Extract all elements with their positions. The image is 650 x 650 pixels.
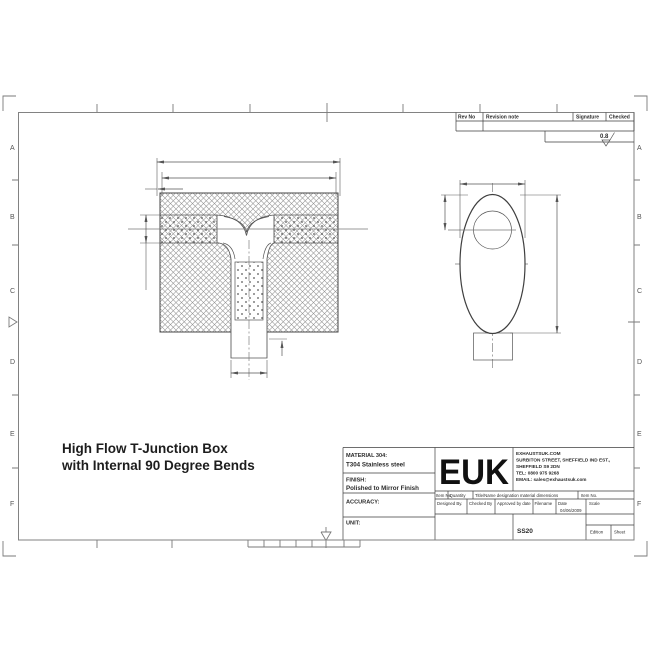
zone-letter: C bbox=[637, 288, 642, 295]
edition-label: Edition bbox=[590, 530, 604, 535]
front-view bbox=[128, 158, 368, 380]
trim-mark-bottom-right-icon bbox=[634, 541, 647, 556]
drawing-number: SS20 bbox=[517, 528, 533, 535]
drawing-title: High Flow T-Junction Box with Internal 9… bbox=[61, 441, 255, 473]
surface-finish-icon: 0.8 bbox=[600, 133, 615, 147]
side-view bbox=[441, 180, 561, 368]
zone-letter: C bbox=[10, 288, 15, 295]
title-line-2: with Internal 90 Degree Bends bbox=[61, 458, 255, 473]
surface-finish-value: 0.8 bbox=[600, 134, 609, 140]
signature-row: Designed By. Checked By Approved by date… bbox=[437, 501, 600, 513]
engineering-drawing: A B C D E F A B C D E F Rev No Revision … bbox=[0, 0, 650, 650]
unit-label: UNIT: bbox=[346, 521, 360, 527]
item-no2-header: Item No. bbox=[581, 493, 597, 498]
trim-mark-bottom-left-icon bbox=[3, 541, 16, 556]
company-city: SHEFFIELD S9 2DN bbox=[516, 464, 560, 469]
zone-letter: E bbox=[637, 431, 642, 438]
oval-body bbox=[460, 195, 525, 334]
revision-table: Rev No Revision note Signature Checked 0… bbox=[456, 113, 634, 147]
title-line-1: High Flow T-Junction Box bbox=[62, 441, 228, 456]
zone-letter: F bbox=[10, 501, 14, 508]
company-web: EXHAUSTSUK.COM bbox=[516, 451, 561, 456]
trim-mark-top-right-icon bbox=[634, 96, 647, 111]
left-center-mark-icon bbox=[9, 317, 17, 327]
rev-no-header: Rev No bbox=[458, 115, 475, 121]
surface-finish-cell bbox=[545, 131, 634, 142]
company-street: SURBITON STREET, SHEFFIELD IND EST., bbox=[516, 458, 610, 463]
company-email: EMAIL: sales@exhaustsuk.com bbox=[516, 477, 586, 482]
bottom-center-arrow-icon bbox=[321, 527, 331, 548]
item-header-row: Item No Quantity Title/Name designation … bbox=[436, 493, 597, 498]
zone-letters-left: A B C D E F bbox=[10, 145, 15, 508]
accuracy-label: ACCURACY: bbox=[346, 500, 380, 506]
quantity-header: Quantity bbox=[450, 493, 467, 498]
drawing-sheet: A B C D E F A B C D E F Rev No Revision … bbox=[0, 0, 650, 650]
material-label: MATERIAL 304: bbox=[346, 453, 387, 459]
date-value: 04/06/2009 bbox=[560, 508, 582, 513]
title-name-header: Title/Name designation material dimensio… bbox=[475, 493, 558, 498]
zone-letter: B bbox=[10, 214, 15, 221]
sheet-label: Sheet bbox=[614, 530, 626, 535]
company-address: EXHAUSTSUK.COM SURBITON STREET, SHEFFIEL… bbox=[516, 451, 610, 482]
revision-note-header: Revision note bbox=[486, 115, 519, 121]
company-tel: TEL: 0800 975 9268 bbox=[516, 471, 559, 476]
title-block: MATERIAL 304: T304 Stainless steel FINIS… bbox=[343, 448, 634, 540]
outlet-stub bbox=[474, 333, 513, 360]
checked-header: Checked bbox=[609, 115, 630, 121]
finish-value: Polished to Mirror Finish bbox=[346, 485, 419, 492]
zone-letter: A bbox=[10, 145, 15, 152]
material-value: T304 Stainless steel bbox=[346, 462, 405, 469]
zone-letter: D bbox=[637, 359, 642, 366]
bottom-row: SS20 Edition Sheet bbox=[517, 528, 626, 535]
finish-label: FINISH: bbox=[346, 478, 366, 484]
trim-mark-top-left-icon bbox=[3, 96, 16, 111]
designed-by-label: Designed By. bbox=[437, 501, 462, 506]
date-label: Date bbox=[558, 501, 568, 506]
zone-letter: F bbox=[637, 501, 641, 508]
zone-letter: B bbox=[637, 214, 642, 221]
filename-label: Filename bbox=[535, 501, 553, 506]
bottom-zone-ticks bbox=[97, 527, 360, 548]
zone-letter: D bbox=[10, 359, 15, 366]
company-logo: EUK bbox=[439, 453, 509, 492]
zone-letter: A bbox=[637, 145, 642, 152]
comparison-scale-icon bbox=[248, 540, 360, 547]
scale-label: Scale bbox=[589, 501, 600, 506]
approved-label: Approved by date bbox=[497, 501, 531, 506]
checked-by-label: Checked By bbox=[469, 501, 493, 506]
zone-letter: E bbox=[10, 431, 15, 438]
zone-letters-right: A B C D E F bbox=[637, 145, 642, 508]
signature-header: Signature bbox=[576, 115, 599, 121]
